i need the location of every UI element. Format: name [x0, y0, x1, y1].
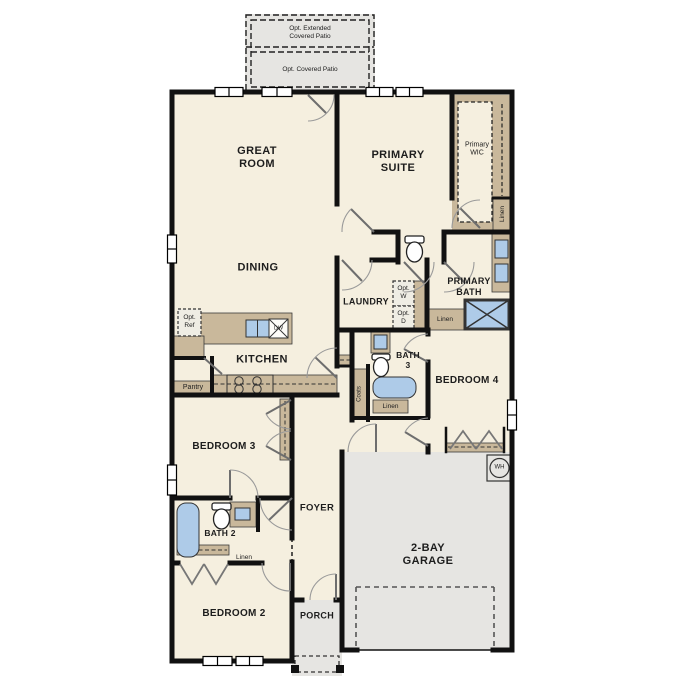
opt-extended-patio-label: Opt. Extended Covered Patio [289, 25, 331, 41]
bath2-label: BATH 2 [204, 528, 235, 538]
porch-post-right [336, 665, 344, 673]
ref-cabinet [174, 336, 204, 358]
linen-wic-label: Linen [499, 206, 507, 222]
primary-wc-toilet [405, 236, 424, 262]
laundry-label: LAUNDRY [343, 297, 389, 308]
bath2-sink [235, 508, 250, 520]
bedroom3-label: BEDROOM 3 [192, 441, 255, 453]
porch-label: PORCH [300, 611, 334, 622]
bedroom4-window [508, 400, 517, 430]
floor-plan: Opt. Extended Covered Patio Opt. Covered… [0, 0, 687, 687]
foyer-label: FOYER [300, 502, 334, 513]
linen-primary-bath-label: Linen [437, 316, 453, 324]
porch-post-left [291, 665, 299, 673]
garage-label: 2-BAY GARAGE [403, 542, 454, 568]
bath2-toilet [212, 503, 231, 529]
primary-sink-1 [495, 240, 508, 258]
primary-wic-label: Primary WIC [465, 142, 489, 159]
opt-dryer-label: Opt. D [397, 310, 409, 326]
pantry-label: Pantry [183, 384, 203, 392]
opt-covered-patio-label: Opt. Covered Patio [282, 66, 337, 74]
great-room-label: GREAT ROOM [237, 145, 277, 171]
bedroom4-label: BEDROOM 4 [435, 375, 498, 387]
bath3-label: BATH 3 [396, 350, 420, 370]
bath3-toilet [372, 354, 390, 377]
floor-plan-canvas [0, 0, 687, 687]
bath2-tub [177, 503, 199, 557]
opt-washer-label: Opt. W [397, 285, 409, 301]
bedroom2-label: BEDROOM 2 [202, 608, 265, 620]
primary-sink-2 [495, 264, 508, 282]
primary-wic-shelving [458, 102, 492, 222]
bedroom3-window [168, 465, 177, 495]
linen-bath2-label: Linen [236, 554, 252, 562]
dishwasher-label: DW [274, 325, 283, 332]
primary-suite-label: PRIMARY SUITE [371, 149, 424, 175]
coats-label: Coats [356, 386, 363, 402]
dining-window [168, 235, 177, 263]
primary-bath-label: PRIMARY BATH [447, 276, 490, 298]
water-heater-label: WH [495, 464, 505, 471]
bath3-tub [373, 377, 416, 398]
linen-bath3-label: Linen [383, 403, 399, 411]
kitchen-label: KITCHEN [236, 353, 288, 366]
dining-label: DINING [238, 261, 279, 274]
opt-ref-label: Opt. Ref [183, 314, 195, 330]
bath3-sink [374, 335, 387, 349]
